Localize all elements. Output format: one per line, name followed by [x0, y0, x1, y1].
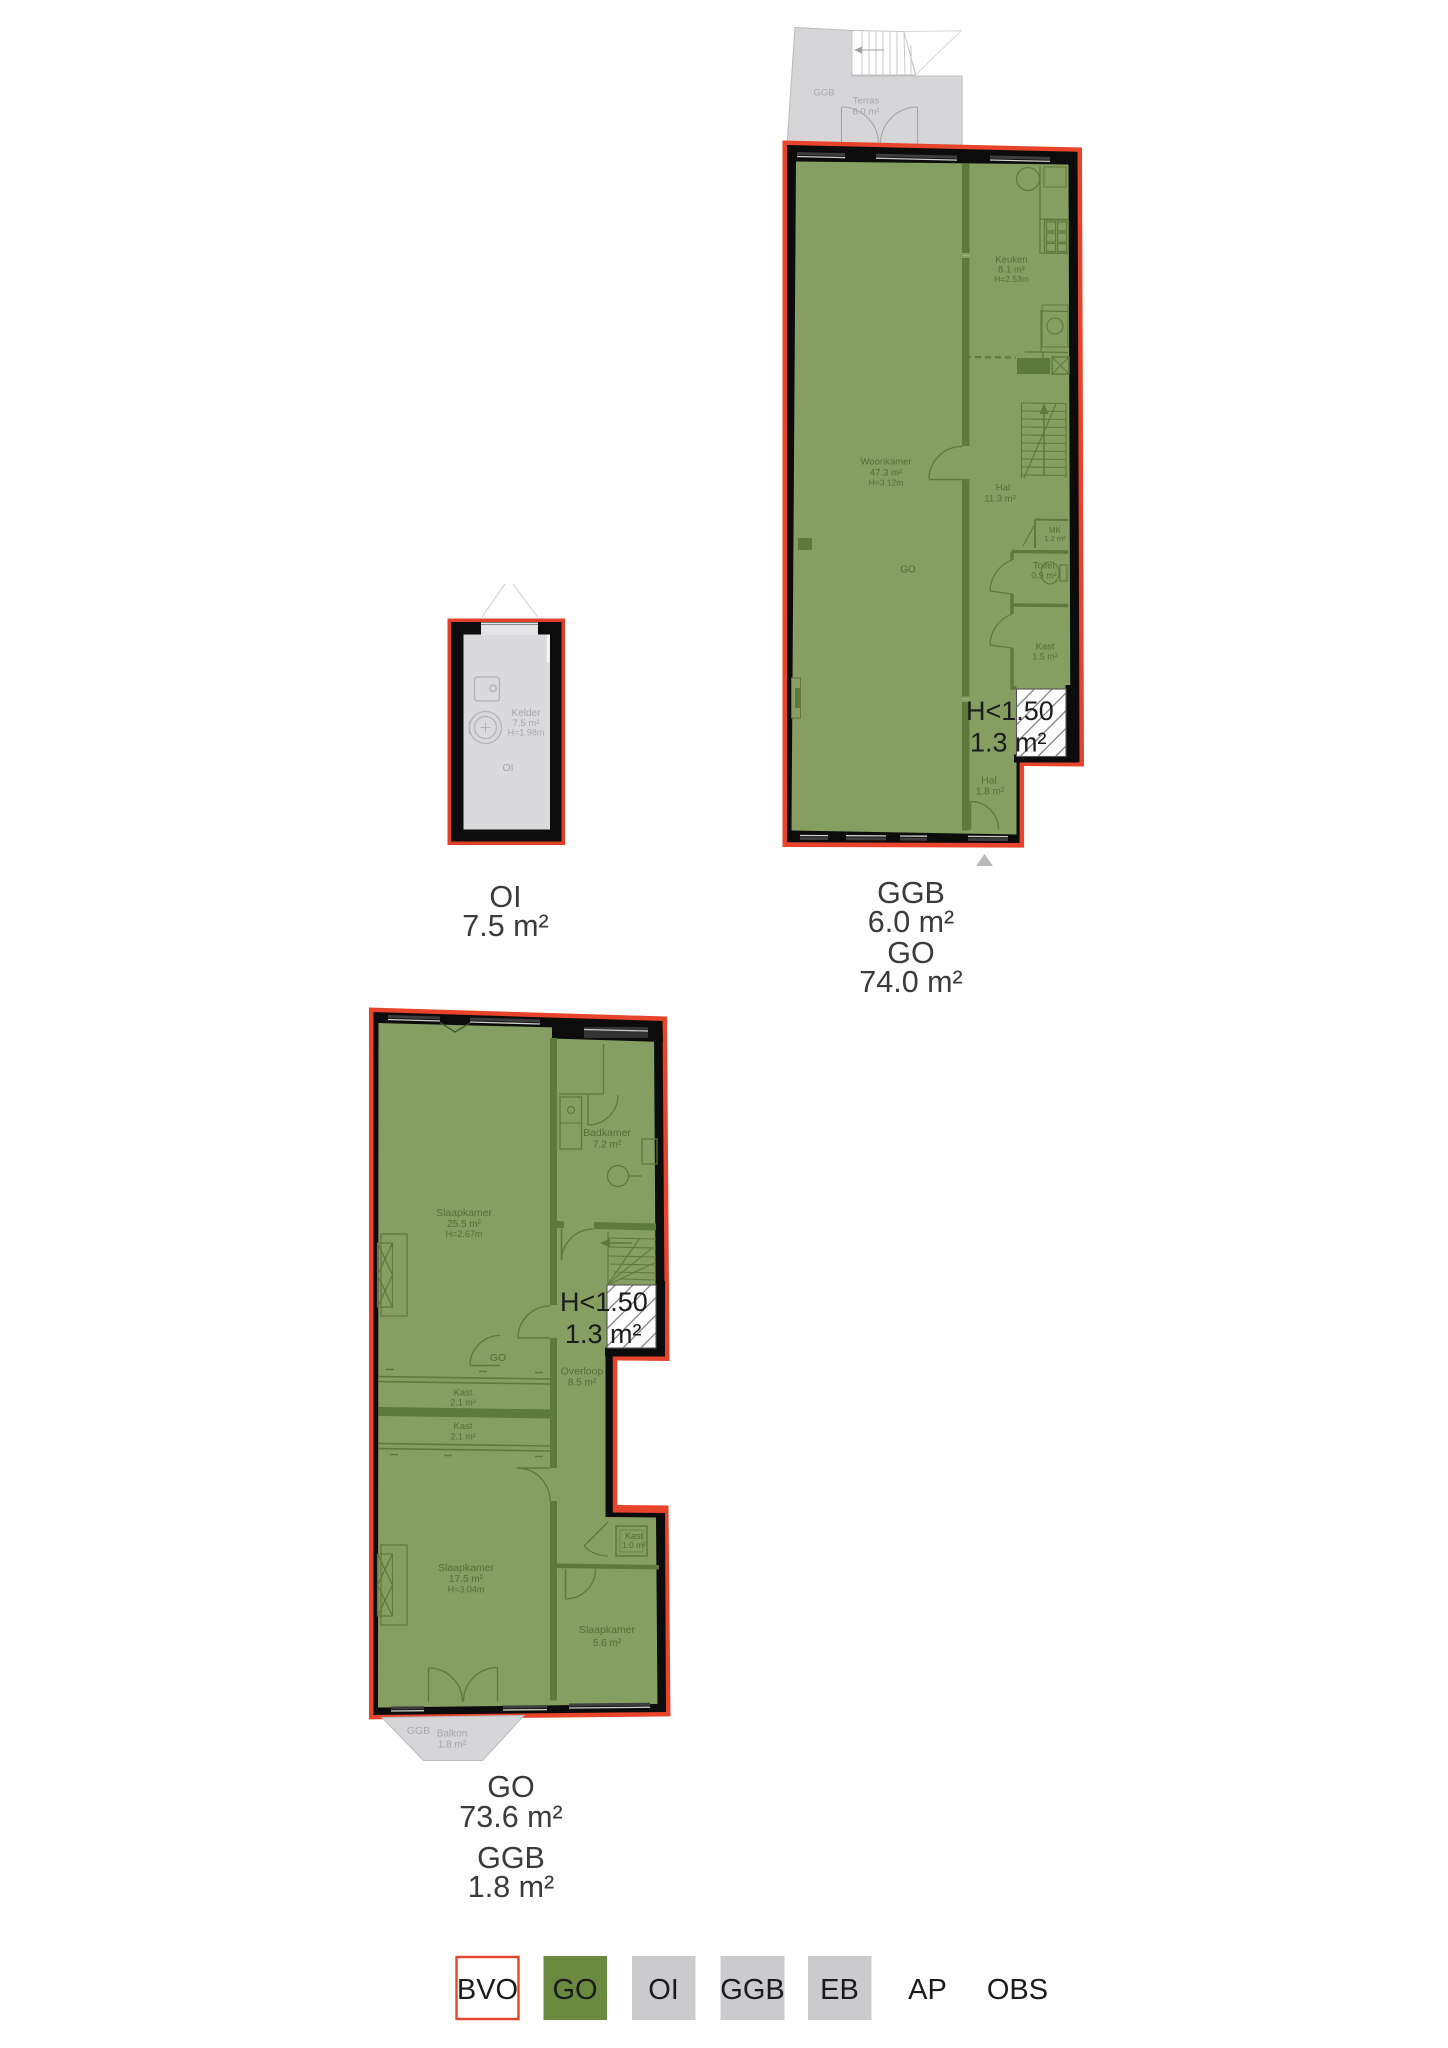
svg-text:GGB: GGB	[720, 1974, 784, 2006]
svg-text:Kast: Kast	[453, 1421, 472, 1432]
svg-text:H<1.50: H<1.50	[560, 1287, 648, 1317]
svg-text:H=3.12m: H=3.12m	[869, 478, 904, 488]
svg-text:BVO: BVO	[457, 1974, 518, 2006]
svg-text:H=2.53m: H=2.53m	[994, 274, 1029, 284]
svg-text:OI: OI	[502, 762, 513, 774]
svg-text:Slaapkamer: Slaapkamer	[438, 1562, 495, 1574]
svg-text:5.6 m²: 5.6 m²	[593, 1638, 622, 1649]
svg-text:H=2.67m: H=2.67m	[446, 1229, 483, 1239]
svg-text:Hal: Hal	[981, 775, 997, 787]
svg-text:17.5 m²: 17.5 m²	[449, 1574, 484, 1585]
svg-text:7.2 m²: 7.2 m²	[593, 1140, 622, 1151]
svg-text:H<1.50: H<1.50	[966, 696, 1054, 726]
svg-text:Slaapkamer: Slaapkamer	[436, 1207, 493, 1219]
svg-text:GO: GO	[487, 1770, 534, 1804]
svg-text:Overloop: Overloop	[561, 1366, 604, 1378]
svg-text:1.2 m²: 1.2 m²	[1044, 534, 1066, 543]
svg-text:1.0 m²: 1.0 m²	[622, 1540, 646, 1550]
svg-text:Woonkamer: Woonkamer	[860, 457, 911, 468]
svg-text:Balkon: Balkon	[437, 1729, 468, 1740]
svg-text:OI: OI	[648, 1974, 679, 2006]
svg-text:GGB: GGB	[407, 1725, 430, 1737]
svg-text:Terras: Terras	[853, 96, 880, 107]
svg-text:1.8 m²: 1.8 m²	[438, 1740, 467, 1751]
svg-text:GGB: GGB	[813, 88, 834, 99]
svg-text:AP: AP	[908, 1974, 947, 2006]
svg-text:73.6 m²: 73.6 m²	[459, 1800, 562, 1834]
svg-text:7.5 m²: 7.5 m²	[462, 909, 548, 943]
svg-text:0.9 m²: 0.9 m²	[1031, 571, 1057, 581]
svg-text:8.5 m²: 8.5 m²	[568, 1378, 597, 1389]
svg-text:H=3.04m: H=3.04m	[448, 1585, 485, 1595]
svg-text:1.3 m²: 1.3 m²	[970, 728, 1047, 758]
svg-text:1.8 m²: 1.8 m²	[976, 787, 1005, 798]
svg-text:GO: GO	[552, 1974, 597, 2006]
svg-text:1.5 m²: 1.5 m²	[1032, 652, 1058, 662]
svg-text:2.1 m²: 2.1 m²	[450, 1432, 476, 1442]
svg-text:11.3 m²: 11.3 m²	[984, 494, 1016, 505]
svg-text:2.1 m²: 2.1 m²	[450, 1398, 476, 1408]
svg-text:H=1.98m: H=1.98m	[508, 728, 545, 738]
svg-text:GO: GO	[900, 565, 916, 576]
svg-text:1.8 m²: 1.8 m²	[468, 1870, 554, 1904]
svg-text:Hal: Hal	[996, 483, 1010, 494]
svg-text:Slaapkamer: Slaapkamer	[579, 1624, 636, 1636]
svg-text:Badkamer: Badkamer	[583, 1127, 631, 1139]
svg-text:1.3 m²: 1.3 m²	[565, 1319, 642, 1349]
svg-text:GO: GO	[490, 1352, 506, 1364]
svg-text:74.0 m²: 74.0 m²	[859, 965, 962, 999]
svg-text:EB: EB	[820, 1974, 859, 2006]
svg-text:OBS: OBS	[987, 1974, 1048, 2006]
svg-text:6.0 m²: 6.0 m²	[868, 905, 954, 939]
